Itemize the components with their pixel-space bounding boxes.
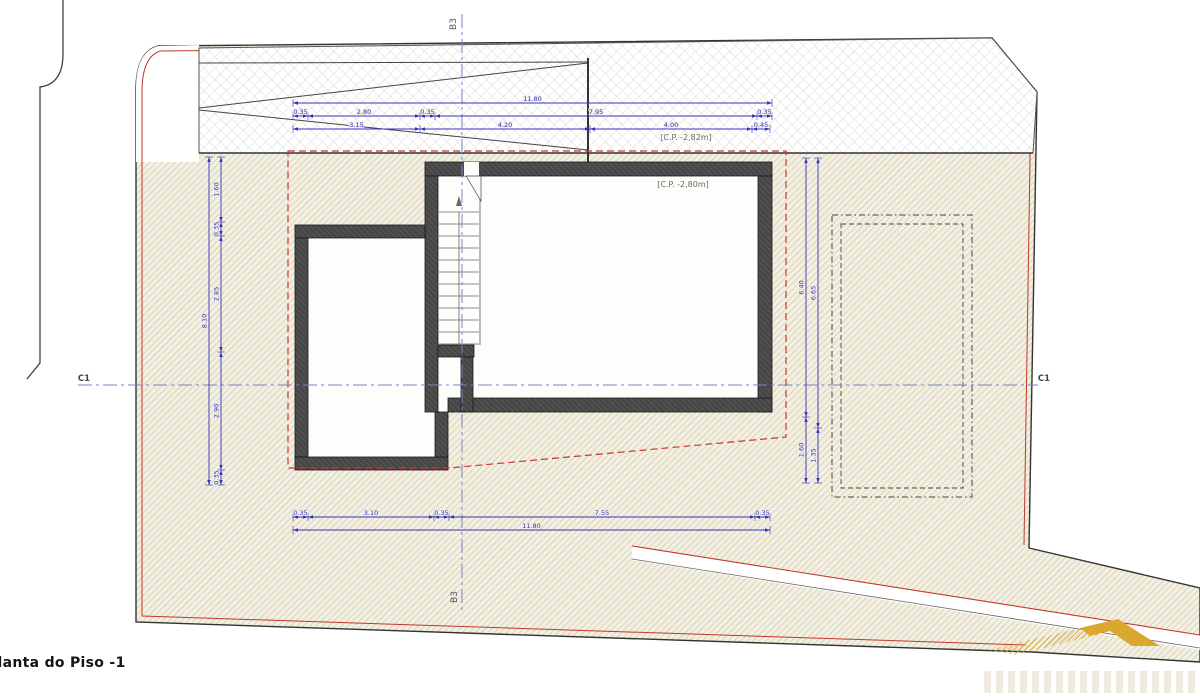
dim-label: 7.95: [589, 108, 603, 116]
wall-leftroom-left: [295, 238, 308, 457]
dim-label: 0.35: [434, 509, 448, 517]
pavement-level-label: [C.P. -2,82m]: [660, 133, 712, 142]
dim-label: 1.60: [798, 443, 806, 457]
parcel-topleft-white: [136, 45, 199, 162]
wall-connector: [435, 412, 448, 457]
terrace-grid-area: [199, 38, 1037, 153]
dim-label: 0.35: [213, 222, 221, 236]
wall-bottom-main: [448, 398, 772, 412]
wall-leftroom-top: [295, 225, 425, 238]
section-marker-b3-bottom: B3: [450, 591, 460, 603]
dim-label: 1.60: [213, 182, 221, 196]
section-marker-b3-top: B3: [449, 18, 459, 30]
dim-label: 11.80: [522, 522, 541, 530]
dim-label: 4.00: [664, 121, 678, 129]
dim-label: 3.15: [349, 121, 363, 129]
section-marker-c1-left: C1: [78, 374, 90, 384]
drawing-sheet: B3 B3 C1 C1 11.800.352.800.357.950.353.1…: [0, 0, 1200, 696]
dim-label: 0.45: [754, 121, 768, 129]
paved-terrace: [199, 38, 1037, 162]
sheet-frame: [27, 0, 63, 379]
floor-level-label: [C.P. -2,80m]: [657, 180, 709, 189]
dim-label: 0.35: [755, 509, 769, 517]
door-opening: [464, 162, 479, 176]
dim-label: 1.35: [810, 448, 818, 462]
wall-understair-h: [438, 345, 474, 357]
dim-label: 11.80: [523, 95, 542, 103]
dim-label: 2.90: [213, 404, 221, 418]
wall-right: [758, 176, 772, 412]
floor-plan-drawing: B3 B3 C1 C1 11.800.352.800.357.950.353.1…: [0, 0, 1200, 696]
dim-label: 8.10: [201, 314, 209, 328]
watermark-text-illegible: [984, 671, 1196, 693]
dim-label: 0.35: [293, 509, 307, 517]
dim-label: 2.85: [213, 287, 221, 301]
dim-label: 2.80: [357, 108, 371, 116]
drawing-title: Planta do Piso -1: [0, 655, 126, 671]
dim-label: 6.40: [798, 280, 806, 294]
dim-label: 0.35: [293, 108, 307, 116]
dim-label: 3.10: [364, 509, 378, 517]
wall-stair-left: [425, 176, 438, 412]
dim-label: 0.35: [420, 108, 434, 116]
dim-label: 4.20: [498, 121, 512, 129]
dim-label: 0.35: [757, 108, 771, 116]
section-marker-c1-right: C1: [1038, 374, 1050, 384]
dim-label: 7.55: [595, 509, 609, 517]
dim-label: 0.35: [213, 470, 221, 484]
dim-label: 6.65: [810, 286, 818, 300]
